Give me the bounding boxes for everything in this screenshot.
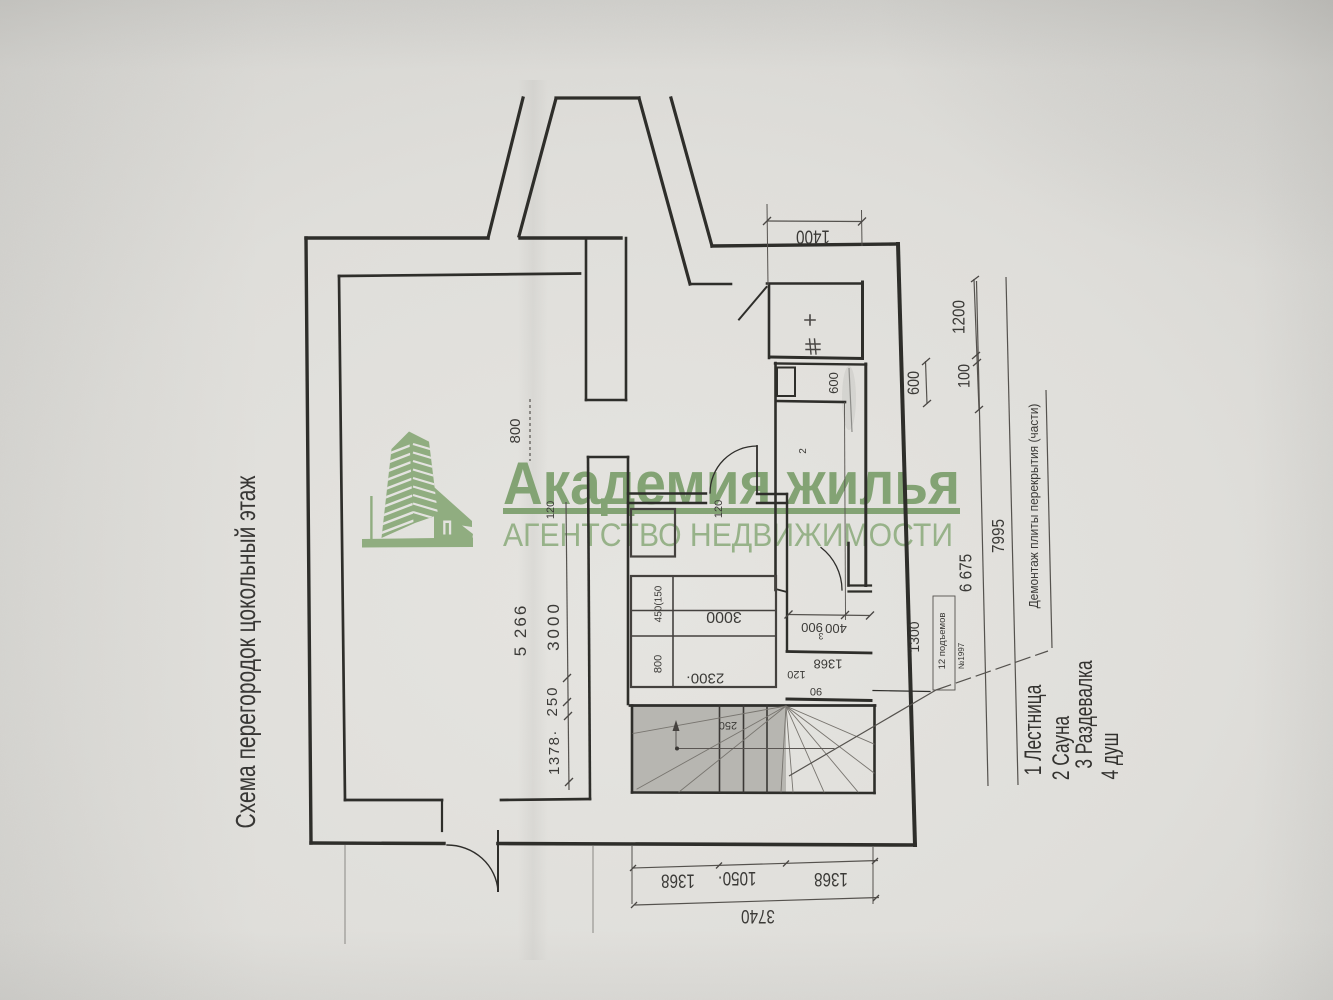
svg-text:1200: 1200 bbox=[948, 300, 968, 334]
svg-text:120: 120 bbox=[787, 668, 805, 680]
svg-text:1368: 1368 bbox=[661, 870, 695, 892]
svg-text:1400: 1400 bbox=[796, 226, 830, 248]
svg-text:250: 250 bbox=[544, 685, 561, 716]
svg-text:Академия жилья: Академия жилья bbox=[503, 450, 960, 517]
svg-text:1050·: 1050· bbox=[718, 868, 757, 890]
svg-text:400: 400 bbox=[825, 621, 847, 636]
svg-text:3 Раздевалка: 3 Раздевалка bbox=[1071, 660, 1097, 769]
svg-text:1378·: 1378· bbox=[546, 729, 563, 775]
svg-text:600: 600 bbox=[826, 372, 841, 394]
svg-text:800: 800 bbox=[653, 655, 665, 673]
svg-text:7995: 7995 bbox=[988, 519, 1008, 553]
svg-text:АГЕНТСТВО НЕДВИЖИМОСТИ: АГЕНТСТВО НЕДВИЖИМОСТИ bbox=[503, 517, 953, 553]
svg-text:5 266: 5 266 bbox=[511, 604, 530, 657]
svg-text:12 подъемов: 12 подъемов bbox=[937, 613, 948, 670]
svg-text:90: 90 bbox=[810, 685, 822, 697]
svg-text:2: 2 bbox=[798, 448, 809, 454]
svg-text:120: 120 bbox=[545, 501, 557, 519]
svg-text:3000: 3000 bbox=[544, 601, 563, 651]
svg-text:100: 100 bbox=[955, 364, 973, 388]
svg-text:250: 250 bbox=[719, 719, 737, 731]
svg-text:Демонтаж плиты перекрытия (час: Демонтаж плиты перекрытия (части) bbox=[1027, 404, 1042, 609]
svg-text:1368: 1368 bbox=[814, 869, 848, 891]
svg-text:4 душ: 4 душ bbox=[1097, 733, 1123, 780]
svg-text:1300: 1300 bbox=[906, 621, 922, 652]
svg-text:№1997: №1997 bbox=[957, 642, 966, 669]
svg-text:450(150: 450(150 bbox=[654, 585, 665, 622]
svg-text:1368: 1368 bbox=[814, 657, 843, 672]
svg-text:1 Лестница: 1 Лестница bbox=[1020, 684, 1046, 775]
svg-text:3: 3 bbox=[818, 631, 823, 641]
svg-text:800: 800 bbox=[507, 418, 524, 443]
svg-text:2300·: 2300· bbox=[686, 670, 724, 687]
svg-text:Схема перегородок цокольный эт: Схема перегородок цокольный этаж bbox=[231, 475, 262, 828]
svg-text:120: 120 bbox=[713, 500, 725, 518]
svg-text:3000: 3000 bbox=[706, 608, 742, 625]
svg-text:3740: 3740 bbox=[741, 906, 775, 928]
svg-text:600: 600 bbox=[905, 371, 923, 395]
svg-text:6 675: 6 675 bbox=[955, 554, 975, 592]
